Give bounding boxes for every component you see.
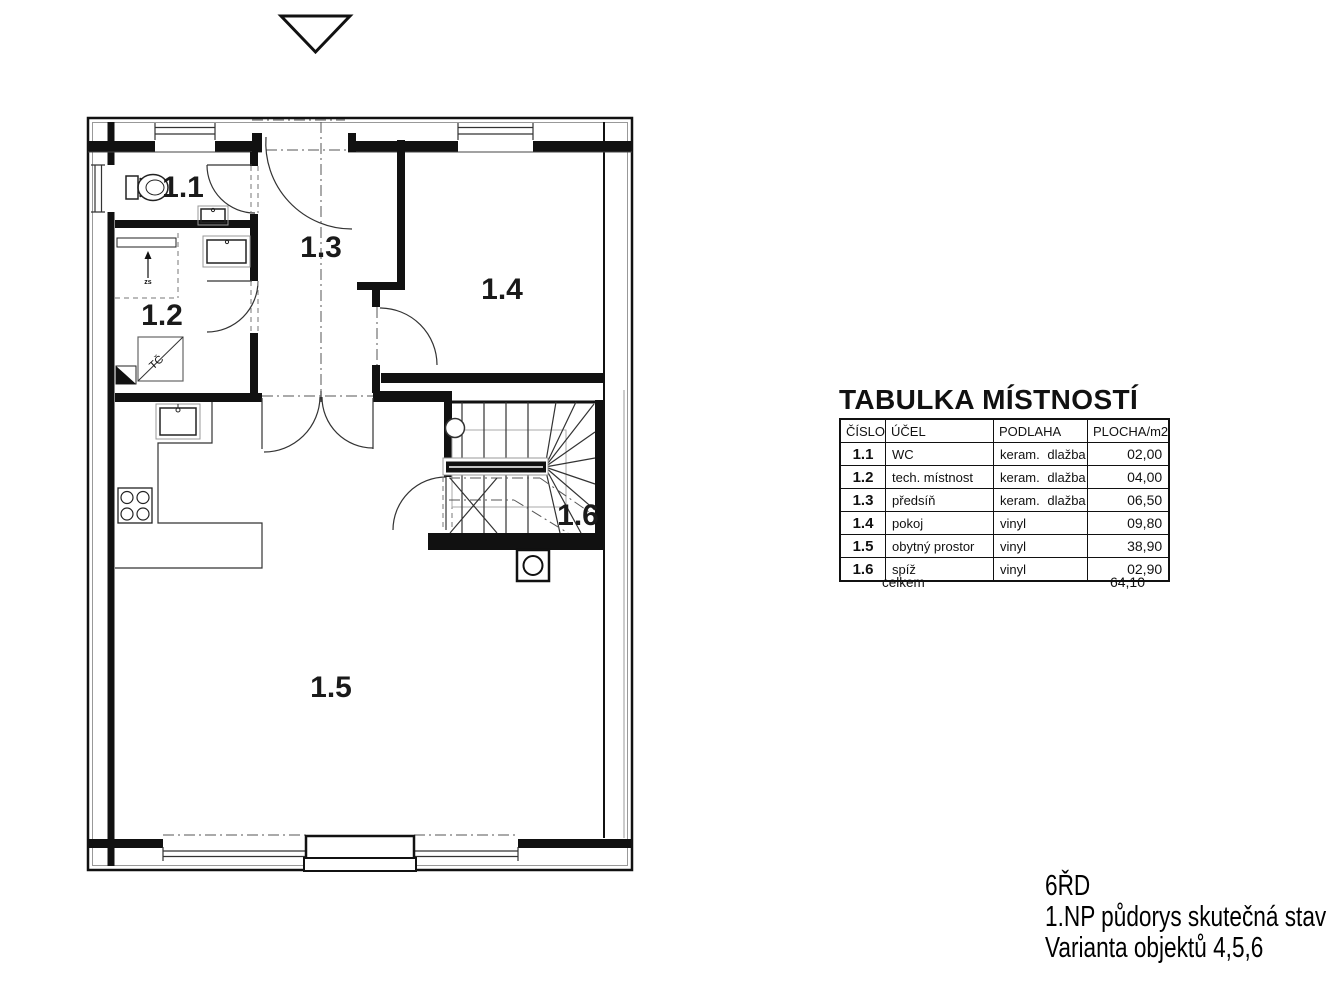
heat-pump-icon: TČ xyxy=(138,337,183,381)
room-label-1-1: 1.1 xyxy=(162,171,204,204)
title-block-project: 6ŘD xyxy=(1045,871,1326,902)
stair-landing-rail xyxy=(443,458,548,475)
table-row: 1.2 tech. místnost keram. dlažba 04,00 xyxy=(840,466,1169,489)
room-area: 09,80 xyxy=(1088,512,1170,535)
room-label-1-2: 1.2 xyxy=(141,299,183,332)
table-row: 1.5 obytný prostor vinyl 38,90 xyxy=(840,535,1169,558)
room-label-1-6: 1.6 xyxy=(557,499,599,532)
kitchen-sink-icon xyxy=(156,404,200,439)
window-top-right xyxy=(458,123,533,140)
washer-outline xyxy=(115,233,178,298)
room-area: 38,90 xyxy=(1088,535,1170,558)
room-number: 1.4 xyxy=(840,512,886,535)
room-label-1-5: 1.5 xyxy=(310,671,352,704)
exterior-walls xyxy=(88,118,632,870)
room-number: 1.3 xyxy=(840,489,886,512)
room-area: 02,00 xyxy=(1088,443,1170,466)
table-header-row: ČÍSLO ÚČEL PODLAHA PLOCHA/m2 xyxy=(840,419,1169,443)
door-pantry xyxy=(393,477,452,530)
col-header-purpose: ÚČEL xyxy=(886,419,994,443)
col-header-area: PLOCHA/m2 xyxy=(1088,419,1170,443)
table-total-value: 64,10 xyxy=(1077,574,1145,590)
window-top-left xyxy=(155,123,215,140)
corner-shaft-icon xyxy=(116,366,136,384)
title-block: 6ŘD 1.NP půdorys skutečná stav Varianta … xyxy=(1045,871,1326,964)
appliance-label: zs xyxy=(144,279,152,286)
title-block-variant: Varianta objektů 4,5,6 xyxy=(1045,933,1326,964)
entrance-arrow-icon xyxy=(281,16,350,52)
room-number: 1.1 xyxy=(840,443,886,466)
kitchen xyxy=(115,402,262,568)
room-number: 1.2 xyxy=(840,466,886,489)
french-door-bottom xyxy=(304,836,416,871)
window-bottom-right xyxy=(414,847,518,861)
col-header-floor: PODLAHA xyxy=(994,419,1088,443)
room-floor: vinyl xyxy=(994,558,1088,582)
table-total-label: celkem xyxy=(882,575,925,590)
double-door-living xyxy=(262,391,373,452)
room-floor: keram. dlažba xyxy=(994,489,1088,512)
table-row: 1.3 předsíň keram. dlažba 06,50 xyxy=(840,489,1169,512)
kitchen-counter xyxy=(115,402,262,568)
flow-arrow-icon: zs xyxy=(144,251,152,286)
window-left-wc xyxy=(91,165,105,212)
room-floor: vinyl xyxy=(994,535,1088,558)
room-table-title: TABULKA MÍSTNOSTÍ xyxy=(839,384,1138,416)
room-floor: keram. dlažba xyxy=(994,466,1088,489)
stair-column xyxy=(446,419,465,438)
col-header-number: ČÍSLO xyxy=(840,419,886,443)
room-label-1-4: 1.4 xyxy=(481,273,523,306)
room-number: 1.5 xyxy=(840,535,886,558)
door-tech-room xyxy=(207,281,258,332)
room-area: 06,50 xyxy=(1088,489,1170,512)
window-bottom-left xyxy=(163,847,306,861)
room-area: 04,00 xyxy=(1088,466,1170,489)
room-purpose: předsíň xyxy=(886,489,994,512)
room-floor: vinyl xyxy=(994,512,1088,535)
table-row: 1.4 pokoj vinyl 09,80 xyxy=(840,512,1169,535)
room-purpose: WC xyxy=(886,443,994,466)
shelf xyxy=(117,238,176,247)
room-purpose: tech. místnost xyxy=(886,466,994,489)
chimney xyxy=(517,550,549,581)
table-row: 1.1 WC keram. dlažba 02,00 xyxy=(840,443,1169,466)
door-room-14 xyxy=(377,307,437,365)
room-number: 1.6 xyxy=(840,558,886,582)
title-block-drawing: 1.NP půdorys skutečná stav xyxy=(1045,902,1326,933)
room-purpose: obytný prostor xyxy=(886,535,994,558)
tech-sink-icon xyxy=(203,236,250,267)
room-table: ČÍSLO ÚČEL PODLAHA PLOCHA/m2 1.1 WC kera… xyxy=(839,418,1170,582)
room-labels: 1.1 1.2 1.3 1.4 1.5 1.6 xyxy=(141,171,599,704)
room-label-1-3: 1.3 xyxy=(300,231,342,264)
room-floor: keram. dlažba xyxy=(994,443,1088,466)
entrance-door xyxy=(252,120,356,229)
wc-sink-icon xyxy=(198,206,228,225)
room-purpose: pokoj xyxy=(886,512,994,535)
stove-icon xyxy=(118,488,152,523)
